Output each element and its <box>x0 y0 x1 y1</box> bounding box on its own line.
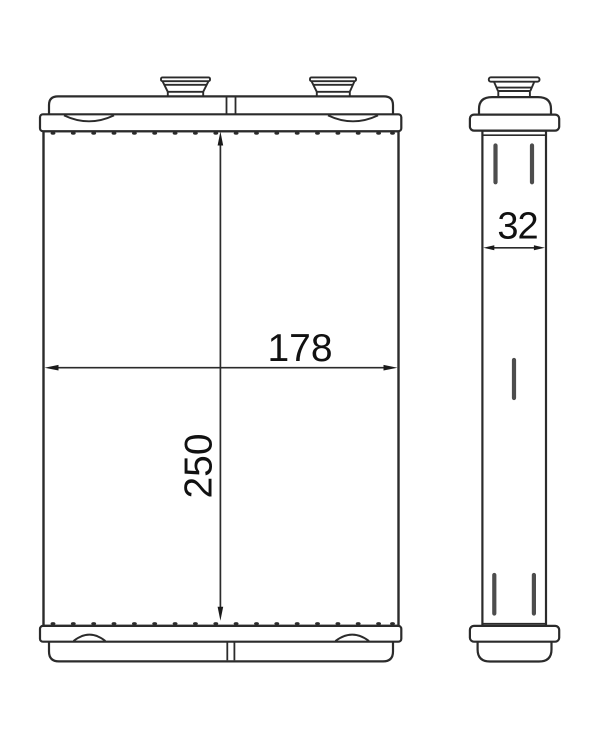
svg-text:250: 250 <box>178 433 221 498</box>
svg-text:178: 178 <box>267 327 332 370</box>
svg-text:32: 32 <box>497 206 537 248</box>
